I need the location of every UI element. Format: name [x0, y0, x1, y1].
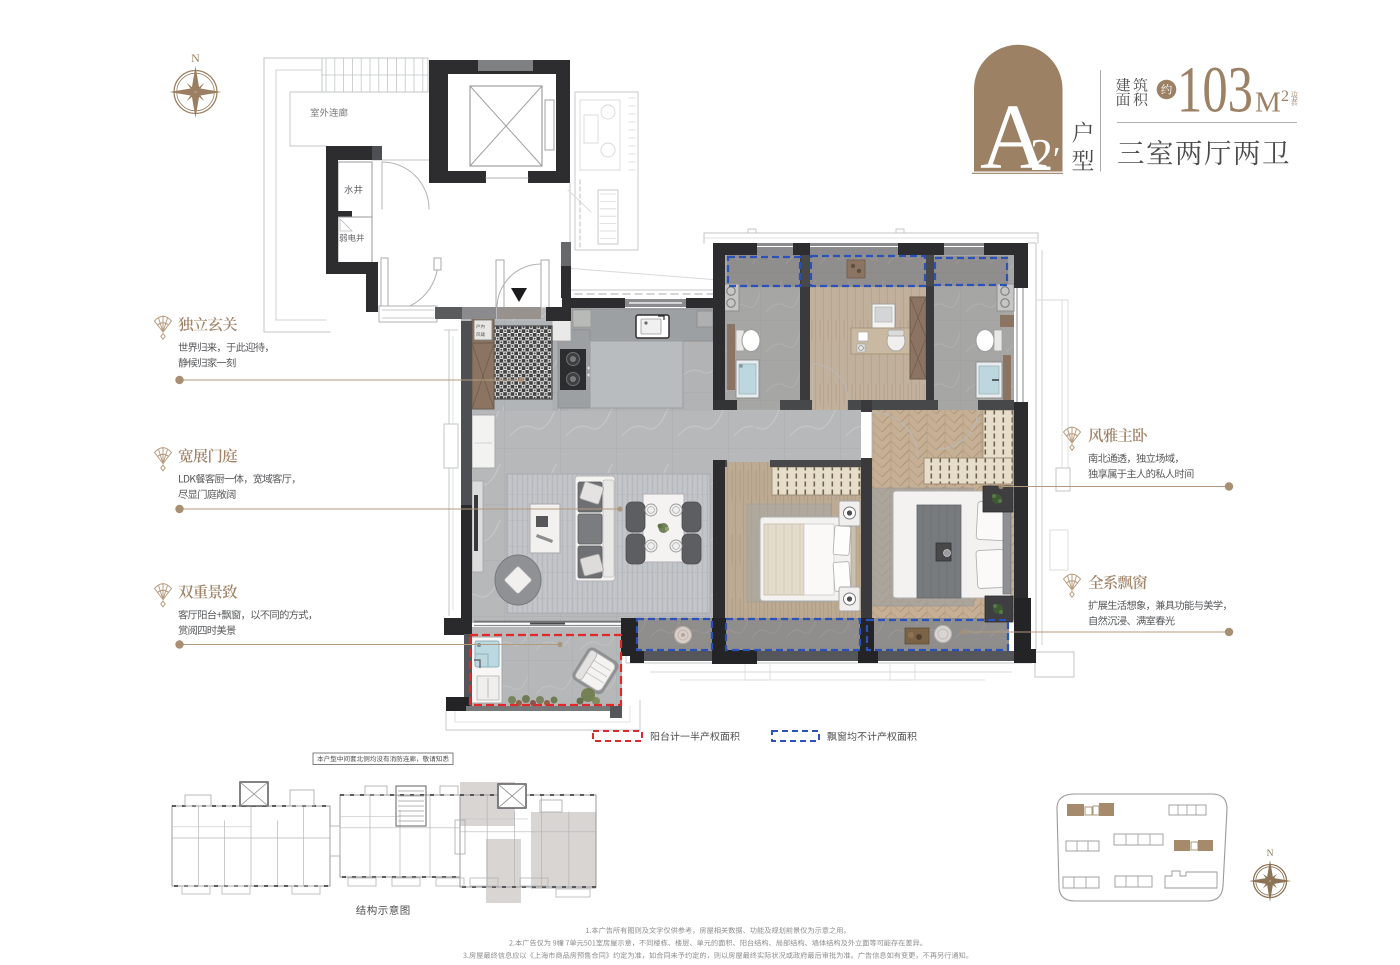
svg-text:N: N: [191, 51, 200, 65]
svg-text:103: 103: [1177, 54, 1253, 127]
svg-text:M: M: [1255, 87, 1281, 119]
svg-text:2: 2: [1281, 88, 1289, 105]
svg-text:N: N: [1267, 849, 1274, 859]
